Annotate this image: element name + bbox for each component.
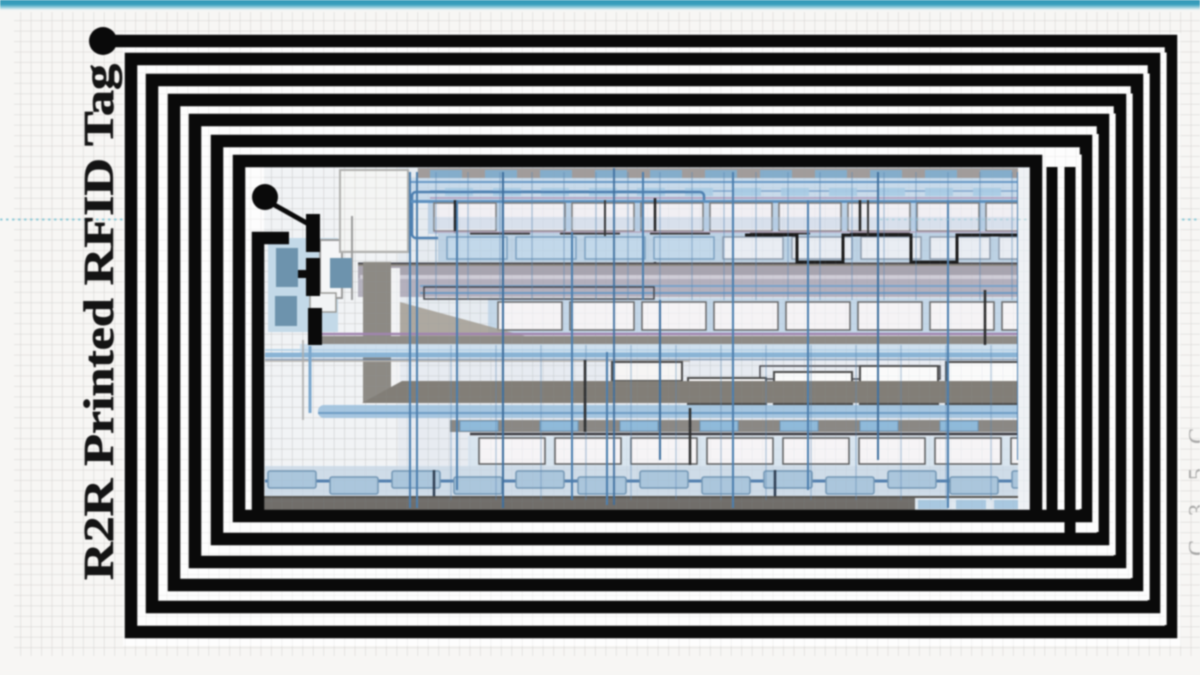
svg-text:R2R Printed RFID Tag: R2R Printed RFID Tag [77, 64, 123, 580]
